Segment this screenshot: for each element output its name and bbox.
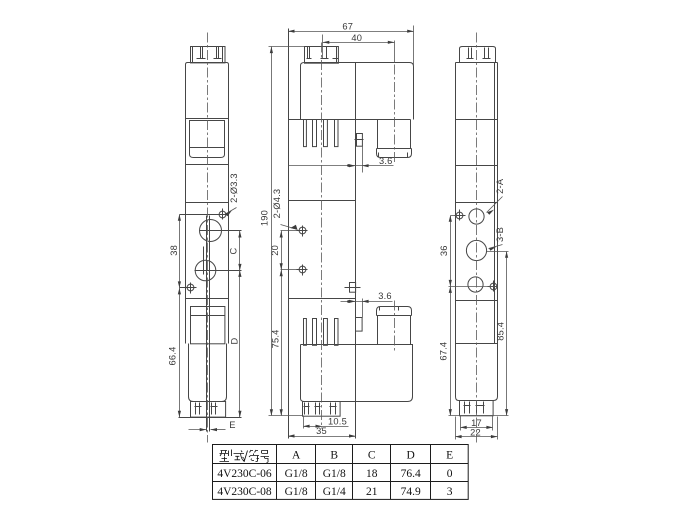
svg-text:G1/8: G1/8 (323, 468, 346, 480)
svg-text:C: C (368, 449, 376, 461)
svg-text:3: 3 (447, 486, 453, 498)
svg-text:G1/8: G1/8 (285, 486, 308, 498)
svg-text:2-A: 2-A (495, 178, 505, 194)
svg-text:D: D (229, 337, 239, 344)
svg-text:3-B: 3-B (495, 227, 505, 242)
svg-text:E: E (229, 420, 235, 430)
svg-text:C: C (229, 247, 239, 254)
svg-text:4V230C-06: 4V230C-06 (217, 468, 272, 480)
svg-text:85.4: 85.4 (495, 322, 505, 341)
svg-text:21: 21 (366, 486, 378, 498)
svg-text:74.9: 74.9 (401, 486, 421, 498)
svg-text:4V230C-08: 4V230C-08 (217, 486, 272, 498)
svg-text:3.6: 3.6 (378, 291, 392, 301)
svg-text:2-Ø3.3: 2-Ø3.3 (229, 173, 239, 203)
svg-text:A: A (292, 449, 301, 461)
svg-text:10.5: 10.5 (328, 417, 347, 427)
svg-text:66.4: 66.4 (168, 347, 178, 366)
svg-text:67: 67 (342, 21, 353, 31)
svg-text:E: E (446, 449, 453, 461)
svg-text:38: 38 (169, 245, 179, 256)
svg-text:75.4: 75.4 (270, 329, 280, 348)
svg-text:0: 0 (447, 468, 453, 480)
svg-text:G1/8: G1/8 (285, 468, 308, 480)
svg-text:3.6: 3.6 (379, 156, 393, 166)
svg-text:67.4: 67.4 (438, 342, 448, 361)
svg-text:18: 18 (366, 468, 378, 480)
svg-text:2-Ø4.3: 2-Ø4.3 (272, 189, 282, 219)
svg-text:36: 36 (439, 245, 449, 256)
svg-text:20: 20 (270, 245, 280, 256)
svg-text:B: B (330, 449, 338, 461)
svg-text:40: 40 (351, 33, 362, 43)
svg-text:D: D (407, 449, 415, 461)
svg-text:22: 22 (470, 427, 481, 437)
svg-text:G1/4: G1/4 (323, 486, 346, 498)
svg-text:76.4: 76.4 (401, 468, 421, 480)
svg-text:190: 190 (260, 210, 270, 226)
